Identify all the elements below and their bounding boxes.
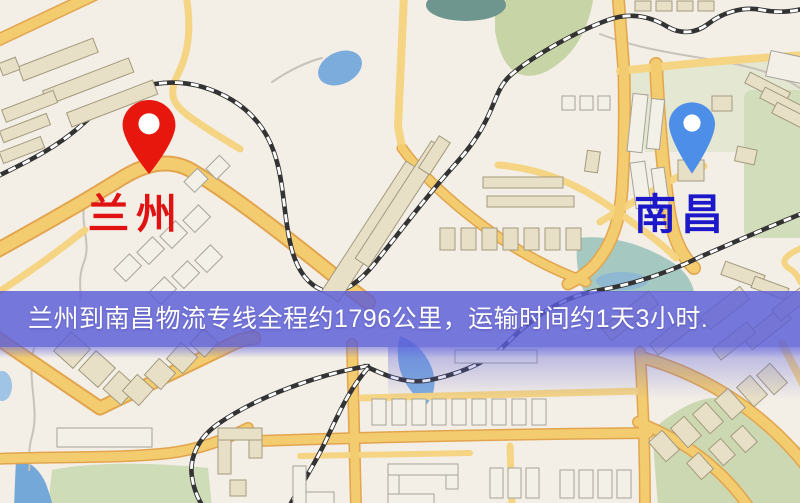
red-location-pin-icon[interactable] — [122, 100, 176, 174]
route-banner-text: 兰州到南昌物流专线全程约1796公里，运输时间约1天3小时. — [0, 291, 800, 347]
map-canvas: 兰州到南昌物流专线全程约1796公里，运输时间约1天3小时. 兰州 南昌 — [0, 0, 800, 503]
route-banner-glow-right — [388, 347, 800, 399]
map-graphics — [0, 0, 800, 503]
destination-city-label: 南昌 — [634, 181, 728, 242]
blue-location-pin-icon[interactable] — [669, 101, 715, 175]
origin-city-label: 兰州 — [88, 180, 184, 240]
